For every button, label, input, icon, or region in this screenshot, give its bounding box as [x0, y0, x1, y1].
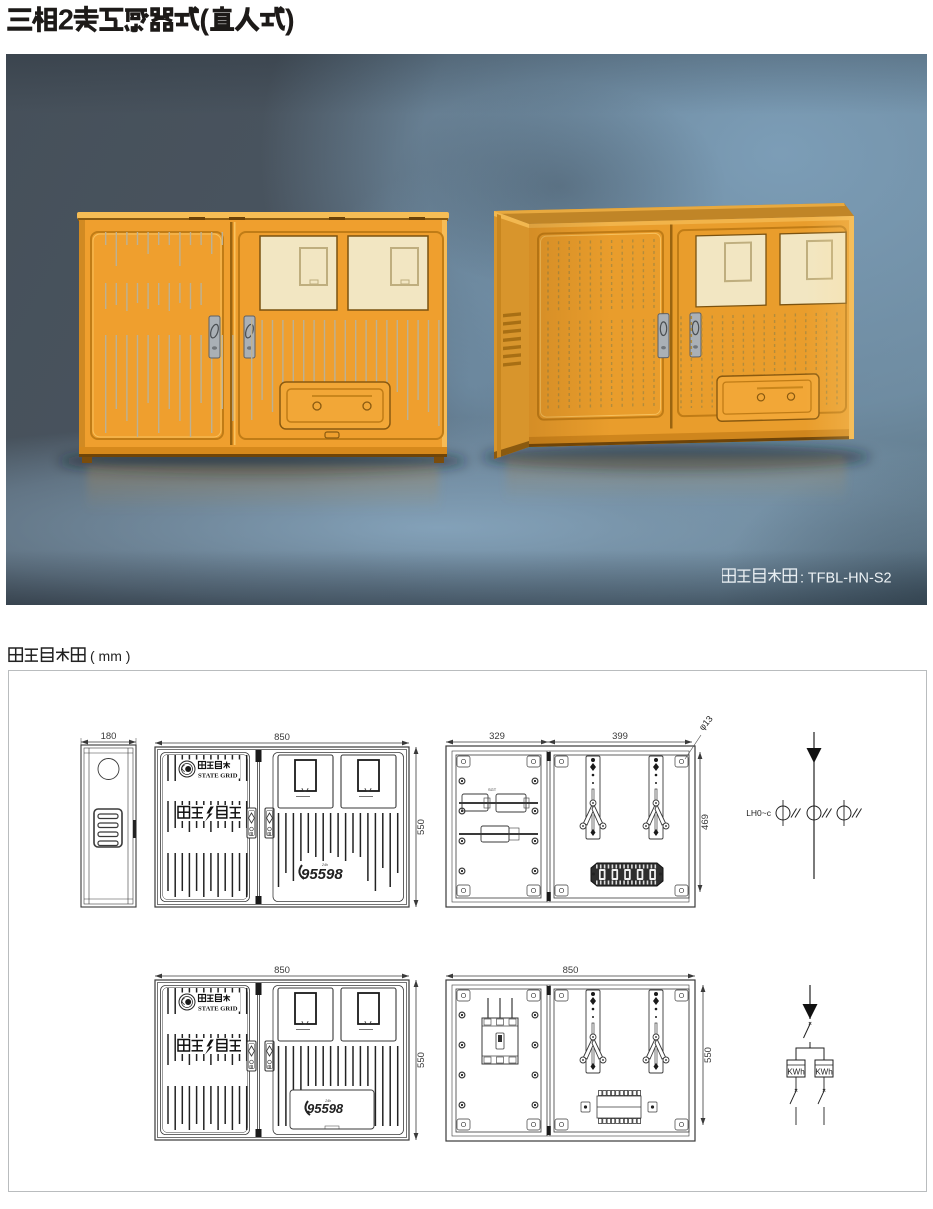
- svg-text:180: 180: [101, 731, 117, 742]
- svg-text:850: 850: [274, 732, 290, 743]
- svg-text:550: 550: [416, 1052, 427, 1068]
- svg-text:( mm ): ( mm ): [90, 648, 130, 664]
- svg-text:STATE GRID: STATE GRID: [198, 773, 238, 780]
- svg-text:STATE GRID: STATE GRID: [198, 1006, 238, 1013]
- svg-text:LH0~c: LH0~c: [746, 808, 772, 818]
- svg-text:850: 850: [563, 965, 579, 976]
- svg-text:399: 399: [612, 731, 628, 742]
- svg-text:850: 850: [274, 965, 290, 976]
- svg-text:95598: 95598: [301, 866, 343, 883]
- svg-text:329: 329: [489, 731, 505, 742]
- svg-text:550: 550: [416, 819, 427, 835]
- svg-text:φ13: φ13: [697, 714, 715, 733]
- svg-text:24h: 24h: [321, 863, 328, 867]
- svg-text:2: 2: [58, 5, 74, 37]
- svg-text:: TFBL-HN-S2: : TFBL-HN-S2: [800, 571, 892, 587]
- svg-text:469: 469: [700, 814, 711, 830]
- svg-text:): ): [285, 5, 295, 37]
- svg-text:KWh: KWh: [787, 1068, 804, 1077]
- svg-text:(: (: [199, 5, 209, 37]
- svg-text:SGT: SGT: [488, 787, 497, 792]
- svg-text:24h: 24h: [324, 1099, 331, 1103]
- svg-text:KWh: KWh: [815, 1068, 832, 1077]
- svg-text:95598: 95598: [307, 1101, 344, 1116]
- svg-text:550: 550: [703, 1047, 714, 1063]
